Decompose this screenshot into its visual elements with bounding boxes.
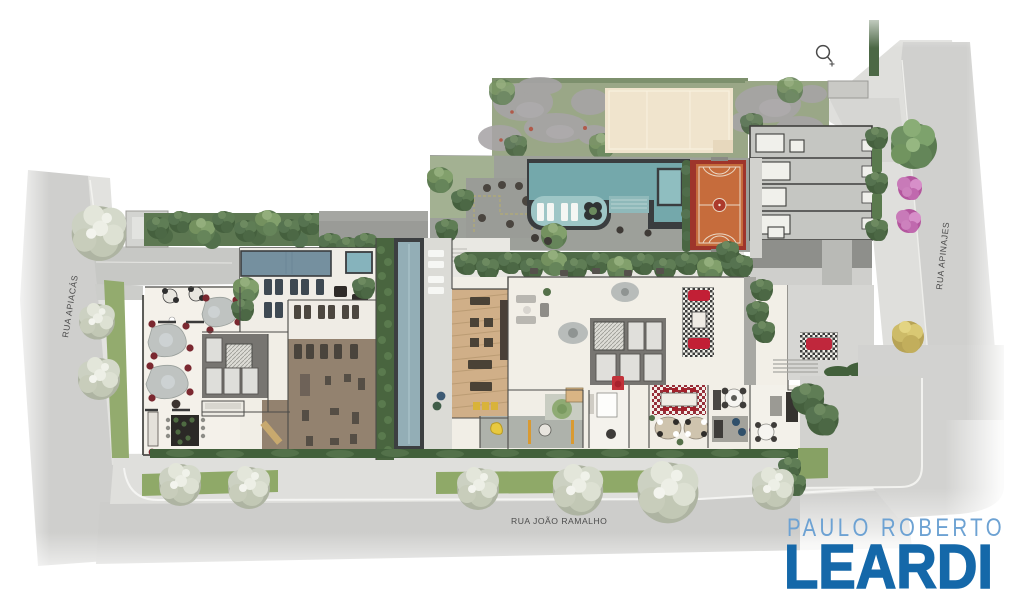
svg-text:LEARDI: LEARDI xyxy=(784,533,993,602)
svg-text:RUA JOÃO RAMALHO: RUA JOÃO RAMALHO xyxy=(511,516,607,526)
